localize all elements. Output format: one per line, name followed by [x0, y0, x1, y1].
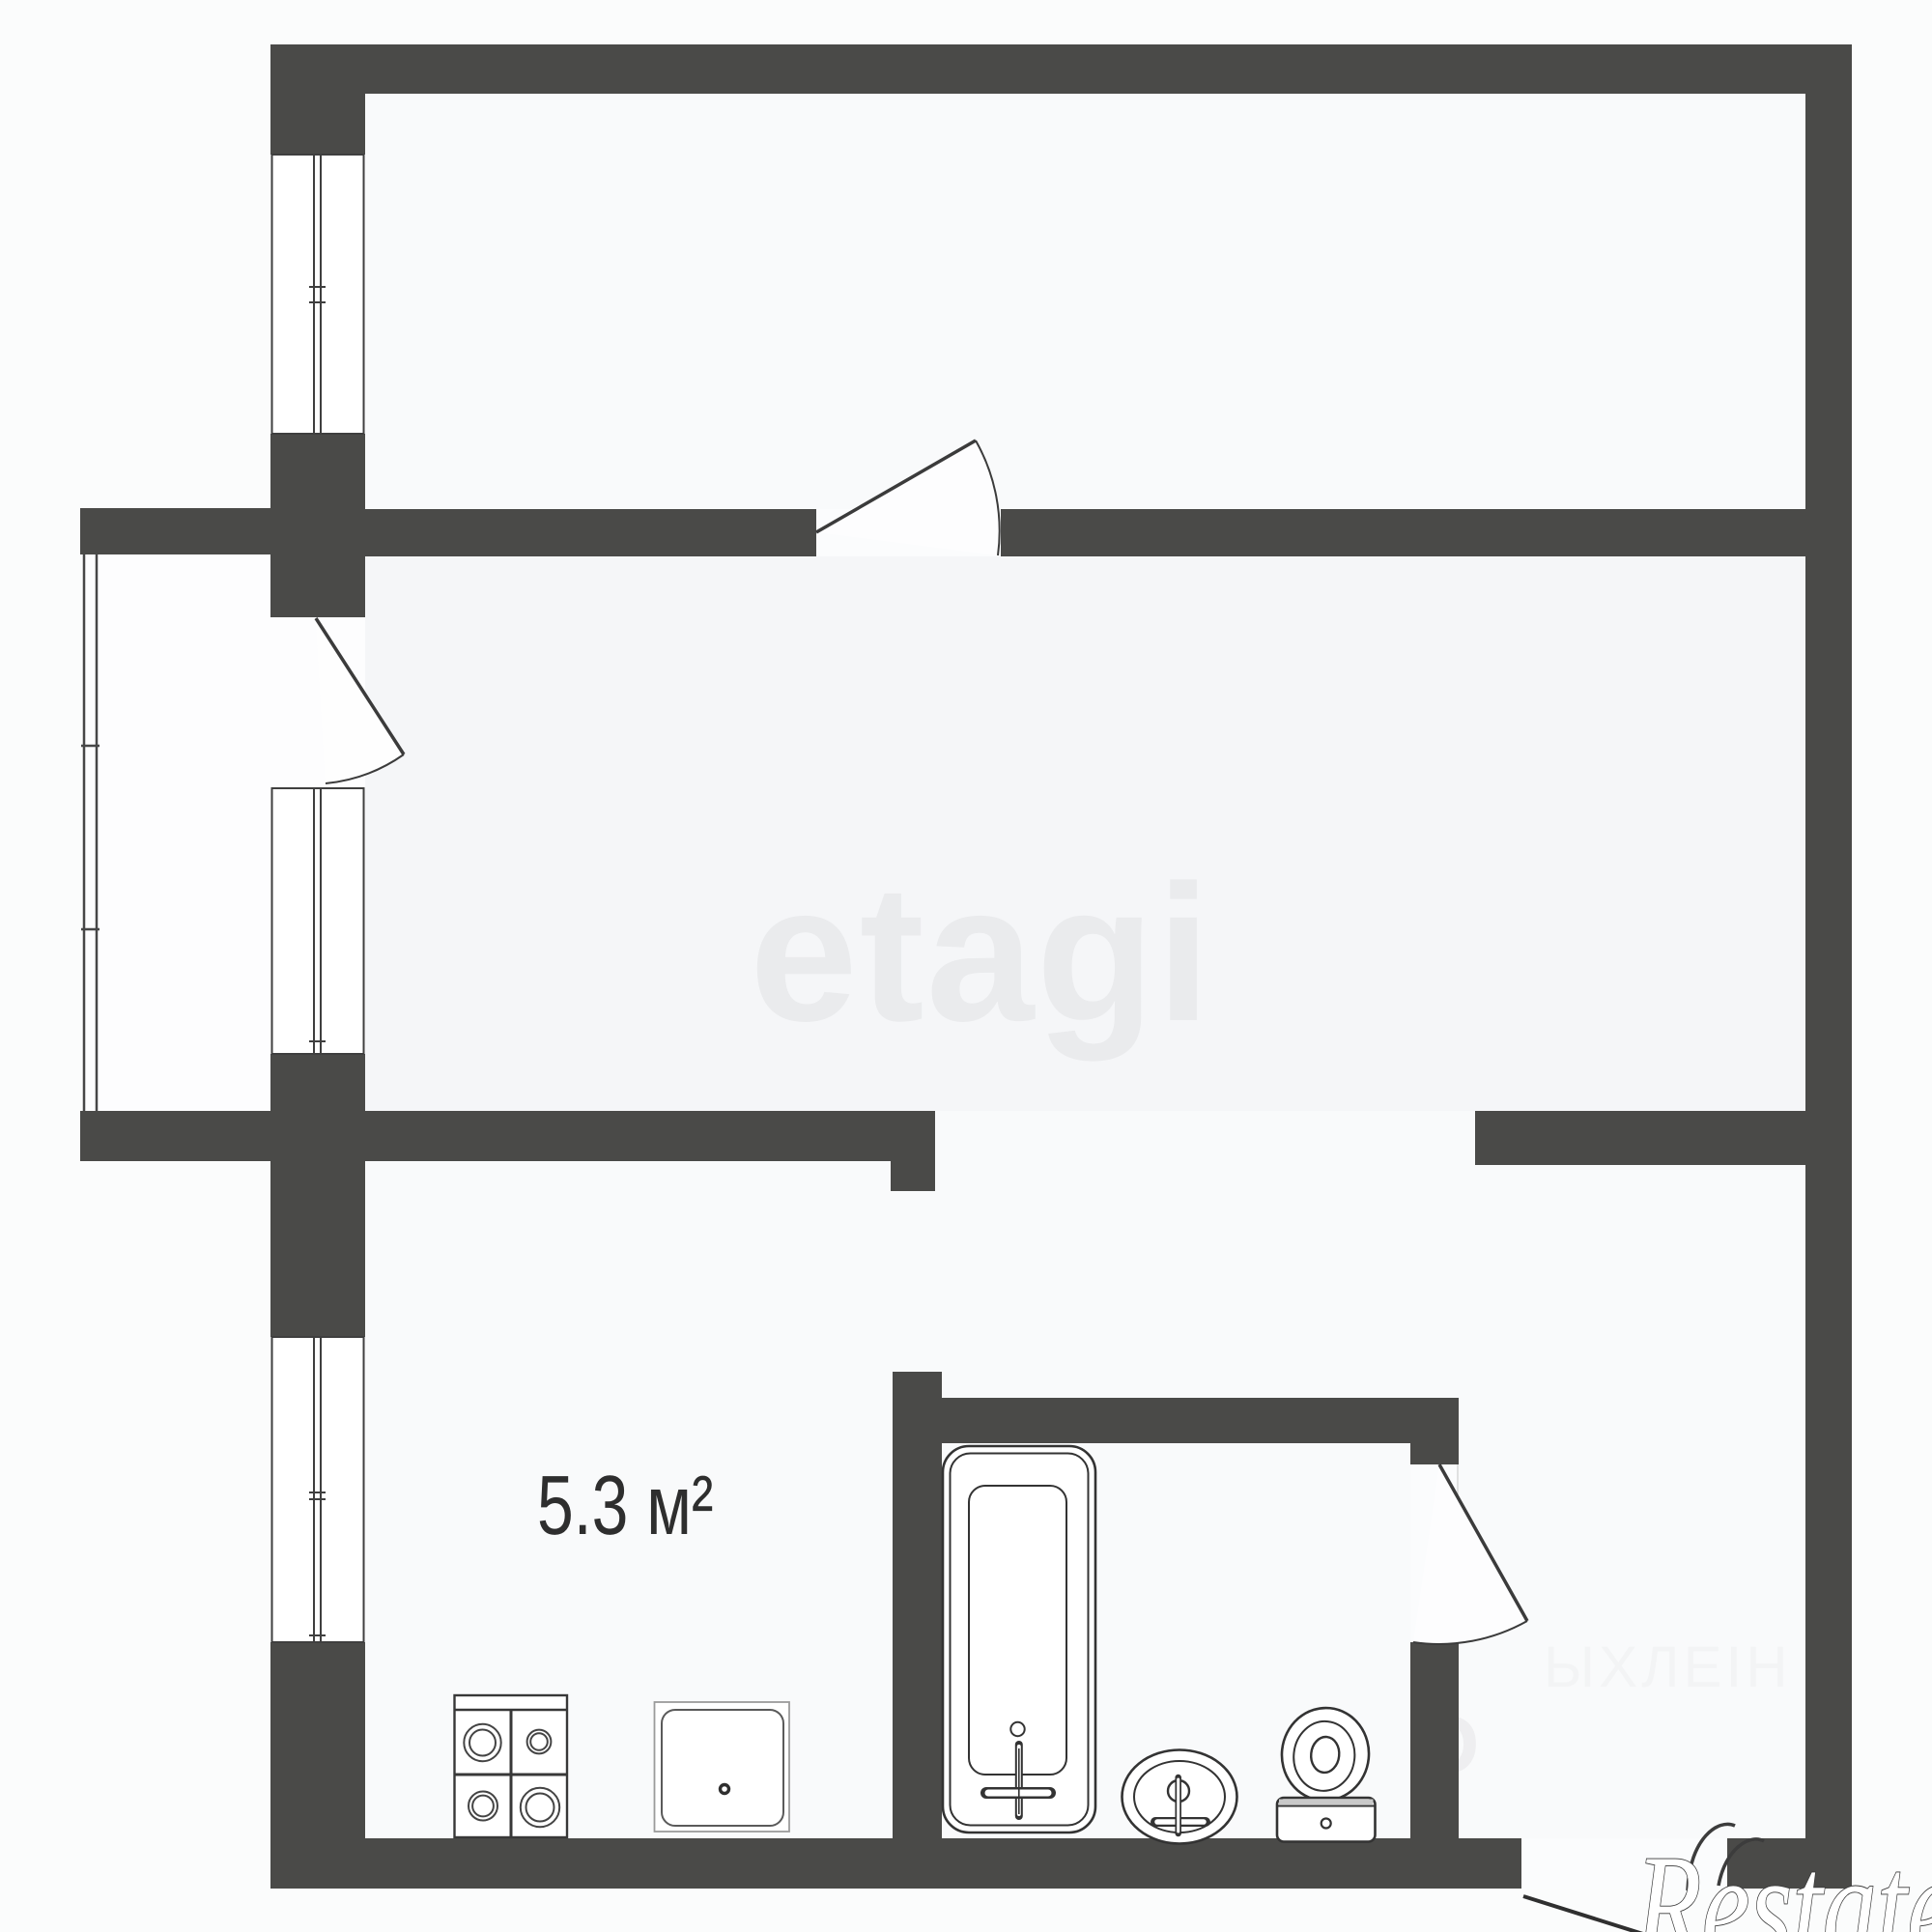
svg-text:etagi: etagi	[750, 844, 1212, 1062]
svg-text:5.3 м²: 5.3 м²	[537, 1459, 713, 1552]
svg-text:Restate: Restate	[1634, 1825, 1932, 1932]
svg-text:ЫХЛЕІН: ЫХЛЕІН	[1544, 1634, 1792, 1699]
